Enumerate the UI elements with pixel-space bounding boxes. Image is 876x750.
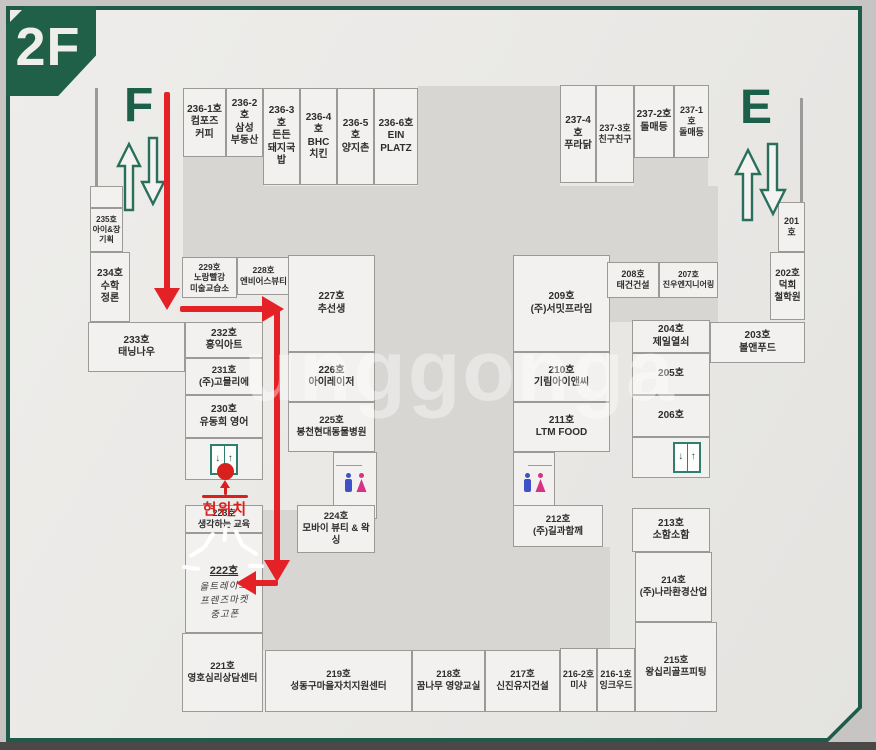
room-235: 235호아이&장 기획 [90, 208, 123, 252]
room-216-2: 216-2호미샤 [560, 648, 597, 712]
room-number: 204호 [658, 324, 684, 337]
room-205: 205호 [632, 353, 710, 395]
room-224: 224호모바이 뷰티 & 왁싱 [297, 505, 375, 553]
room-number: 213호 [658, 518, 684, 531]
room-number: 229호 [198, 262, 220, 273]
room-name: 생각하는 교육 [198, 519, 250, 530]
route-segment-vertical-1 [164, 92, 170, 290]
room-236-1: 236-1호컴포즈 커피 [183, 88, 226, 157]
restroom-woman-icon [536, 473, 546, 493]
room-number: 232호 [211, 328, 237, 341]
room-name: (주)서밋프라임 [531, 304, 593, 317]
room-name: 추선생 [318, 304, 346, 317]
room-number: 228호 [252, 265, 274, 276]
current-location-arrow-shaft [224, 487, 227, 495]
room-name: 푸라닭 [564, 140, 592, 153]
room-number: 212호 [546, 514, 571, 526]
restroom-woman-icon [357, 473, 367, 493]
courtyard-area [183, 157, 264, 186]
room-236-6: 236-6호EIN PLATZ [374, 88, 418, 185]
room-230: 230호유동희 영어 [185, 395, 263, 438]
room-number: 207호 [678, 270, 699, 280]
room-name: 유동희 영어 [200, 417, 249, 430]
room-number: 227호 [319, 291, 345, 304]
room-number: 237-3호 [599, 123, 630, 134]
room-name: 볼앤푸드 [739, 343, 776, 356]
room-232: 232호홍익아트 [185, 322, 263, 358]
room-217: 217호신진유지건설 [485, 650, 560, 712]
room-number: 218호 [436, 669, 461, 681]
floor-badge-label: 2F [15, 16, 80, 78]
courtyard-area [513, 547, 610, 650]
room-202: 202호덕희 철학원 [770, 252, 805, 320]
room-number: 236-6호 [379, 118, 414, 131]
room-210: 210호기림아이앤씨 [513, 352, 610, 402]
courtyard-area [375, 258, 513, 650]
room-name: 봉천현대동물병원 [297, 427, 367, 439]
room-number: 219호 [326, 669, 351, 681]
room-213: 213호소함소함 [632, 508, 710, 552]
room-name: (주)고믈리에 [199, 377, 249, 389]
stair-f-label: F [124, 78, 153, 133]
room-233: 233호태닝나우 [88, 322, 185, 372]
room-204: 204호제일열쇠 [632, 320, 710, 353]
room-231: 231호(주)고믈리에 [185, 358, 263, 395]
room-236-5: 236-5호양지촌 [337, 88, 374, 185]
room-number: 231호 [212, 365, 237, 377]
room-name: EIN PLATZ [380, 130, 411, 155]
restroom-man-icon [523, 473, 533, 493]
room-name: 돌매등 [640, 122, 668, 135]
room-name: (주)나라환경산업 [640, 587, 708, 599]
room-number: 236-3호 [265, 105, 298, 130]
stairs-up-down-arrows-icon [116, 136, 168, 212]
room-number: 234호 [97, 268, 123, 281]
room-name: 왕십리골프피팅 [645, 667, 706, 679]
room-number: 202호 [775, 268, 800, 280]
room-216-1: 216-1호잉크우드 [597, 648, 635, 712]
room-number: 215호 [664, 655, 689, 667]
room-236-2: 236-2호삼성 부동산 [226, 88, 263, 157]
room-name: 성동구마을자치지원센터 [290, 681, 386, 693]
room-name: BHC 치킨 [308, 137, 330, 162]
floor-plan: F E ↓↑ ↓↑ 222호 올트레이드 [0, 0, 876, 750]
room-237-2: 237-2호돌매등 [634, 85, 674, 158]
room-number: 236-2호 [228, 98, 261, 123]
room-226: 226호아이레이저 [288, 352, 375, 402]
room-number: 233호 [124, 335, 150, 348]
room-number: 211호 [549, 415, 574, 428]
current-location-label: 현위치 [197, 498, 253, 519]
room-236-4: 236-4호BHC 치킨 [300, 88, 337, 185]
room-name: 제일열쇠 [653, 337, 690, 350]
room-212: 212호(주)길과함께 [513, 505, 603, 547]
room-number: 214호 [661, 575, 686, 587]
room-number: 205호 [658, 368, 684, 381]
room-211: 211호LTM FOOD [513, 402, 610, 452]
room-number: 225호 [319, 415, 344, 427]
room-237-1: 237-1호돌매등 [674, 85, 709, 158]
room-name: 아이&장 기획 [93, 225, 121, 245]
room-name: 양지촌 [342, 143, 370, 156]
room-number: 237-1호 [676, 105, 707, 128]
room-number: 236-4호 [302, 112, 335, 137]
room-number: 226호 [319, 365, 345, 378]
room-225: 225호봉천현대동물병원 [288, 402, 375, 452]
room-number: 230호 [211, 404, 237, 417]
room-number: 236-1호 [187, 104, 222, 117]
room-name: (주)길과함께 [533, 526, 583, 538]
room-215: 215호왕십리골프피팅 [635, 622, 717, 712]
room-name: 홍익아트 [206, 340, 243, 353]
room-number: 209호 [549, 291, 575, 304]
room-208: 208호태건건설 [607, 262, 659, 298]
room-name: 진우엔지니어링 [663, 280, 715, 290]
room-name: 아이레이저 [309, 377, 355, 390]
route-arrowhead-down [264, 560, 290, 582]
current-location-dot [217, 463, 234, 480]
room-237-4: 237-4호푸라닭 [560, 85, 596, 183]
courtyard-area [634, 158, 708, 186]
room-name: 덕희 철학원 [774, 280, 800, 304]
room-221: 221호영호심리상담센터 [182, 633, 263, 712]
room-236-3: 236-3호든든 돼지국밥 [263, 88, 300, 185]
room-227: 227호추선생 [288, 255, 375, 352]
room-222-number: 222호 [210, 562, 238, 578]
wall-segment [800, 98, 803, 202]
room-name: 돌매등 [679, 127, 704, 138]
room-name: 모바이 뷰티 & 왁싱 [299, 523, 373, 547]
room-name: 노랑빨강 미술교습소 [190, 272, 229, 293]
courtyard-area [183, 186, 718, 258]
room-name: 든든 돼지국밥 [265, 130, 298, 168]
room-name: 수학 정론 [101, 281, 119, 306]
route-arrowhead-down [154, 288, 180, 310]
room-229: 229호노랑빨강 미술교습소 [182, 257, 237, 298]
room-number: 203호 [745, 330, 771, 343]
room-234: 234호수학 정론 [90, 252, 130, 322]
room-number: 237-4호 [562, 115, 594, 140]
room-name: 잉크우드 [599, 680, 632, 691]
room-203: 203호볼앤푸드 [710, 322, 805, 363]
room-number: 217호 [510, 669, 535, 681]
room-name: 삼성 부동산 [231, 123, 259, 148]
current-location-underline [202, 495, 248, 498]
room-name: 영호심리상담센터 [188, 673, 258, 685]
route-arrowhead-right [262, 296, 284, 322]
restroom-man-icon [344, 473, 354, 493]
room-209: 209호(주)서밋프라임 [513, 255, 610, 352]
room-number: 237-2호 [637, 109, 672, 122]
room-name: 기림아이앤씨 [534, 377, 589, 390]
room-206: 206호 [632, 395, 710, 437]
room-name: 꿈나무 영양교실 [417, 681, 481, 693]
room-name: 엔비어스뷰티 [240, 276, 287, 287]
route-segment-horizontal-1 [180, 306, 264, 312]
room-number: 235호 [96, 215, 117, 225]
room-name: LTM FOOD [536, 427, 587, 440]
route-arrowhead-left [236, 571, 256, 595]
room-number: 216-2호 [563, 669, 594, 680]
room-name: 컴포즈 커피 [185, 116, 224, 141]
room-207: 207호진우엔지니어링 [659, 262, 718, 298]
room-number: 210호 [549, 365, 575, 378]
room-name: 소함소함 [653, 530, 690, 543]
room-name: 태건건설 [616, 280, 649, 291]
elevator-cell-east: ↓↑ [632, 437, 710, 478]
room-number: 216-1호 [600, 669, 631, 680]
route-segment-vertical-2 [274, 310, 280, 562]
room-214: 214호(주)나라환경산업 [635, 552, 712, 622]
room-number: 236-5호 [339, 118, 372, 143]
room-name: 태닝나우 [118, 347, 155, 360]
room-219: 219호성동구마을자치지원센터 [265, 650, 412, 712]
courtyard-area [418, 86, 560, 187]
room-number: 221호 [210, 661, 235, 673]
stairs-up-down-arrows-icon [734, 142, 788, 222]
room-number: 208호 [621, 269, 644, 280]
room-number: 224호 [324, 511, 349, 523]
room-237-3: 237-3호친구친구 [596, 85, 634, 183]
room-number: 206호 [658, 410, 684, 423]
room-218: 218호꿈나무 영양교실 [412, 650, 485, 712]
room-name: 신진유지건설 [496, 681, 548, 693]
elevator-icon: ↓↑ [673, 442, 701, 473]
room-name: 친구친구 [598, 134, 631, 145]
room-228: 228호엔비어스뷰티 [237, 257, 290, 295]
stair-e-label: E [740, 80, 772, 135]
room-name: 미샤 [570, 680, 587, 691]
